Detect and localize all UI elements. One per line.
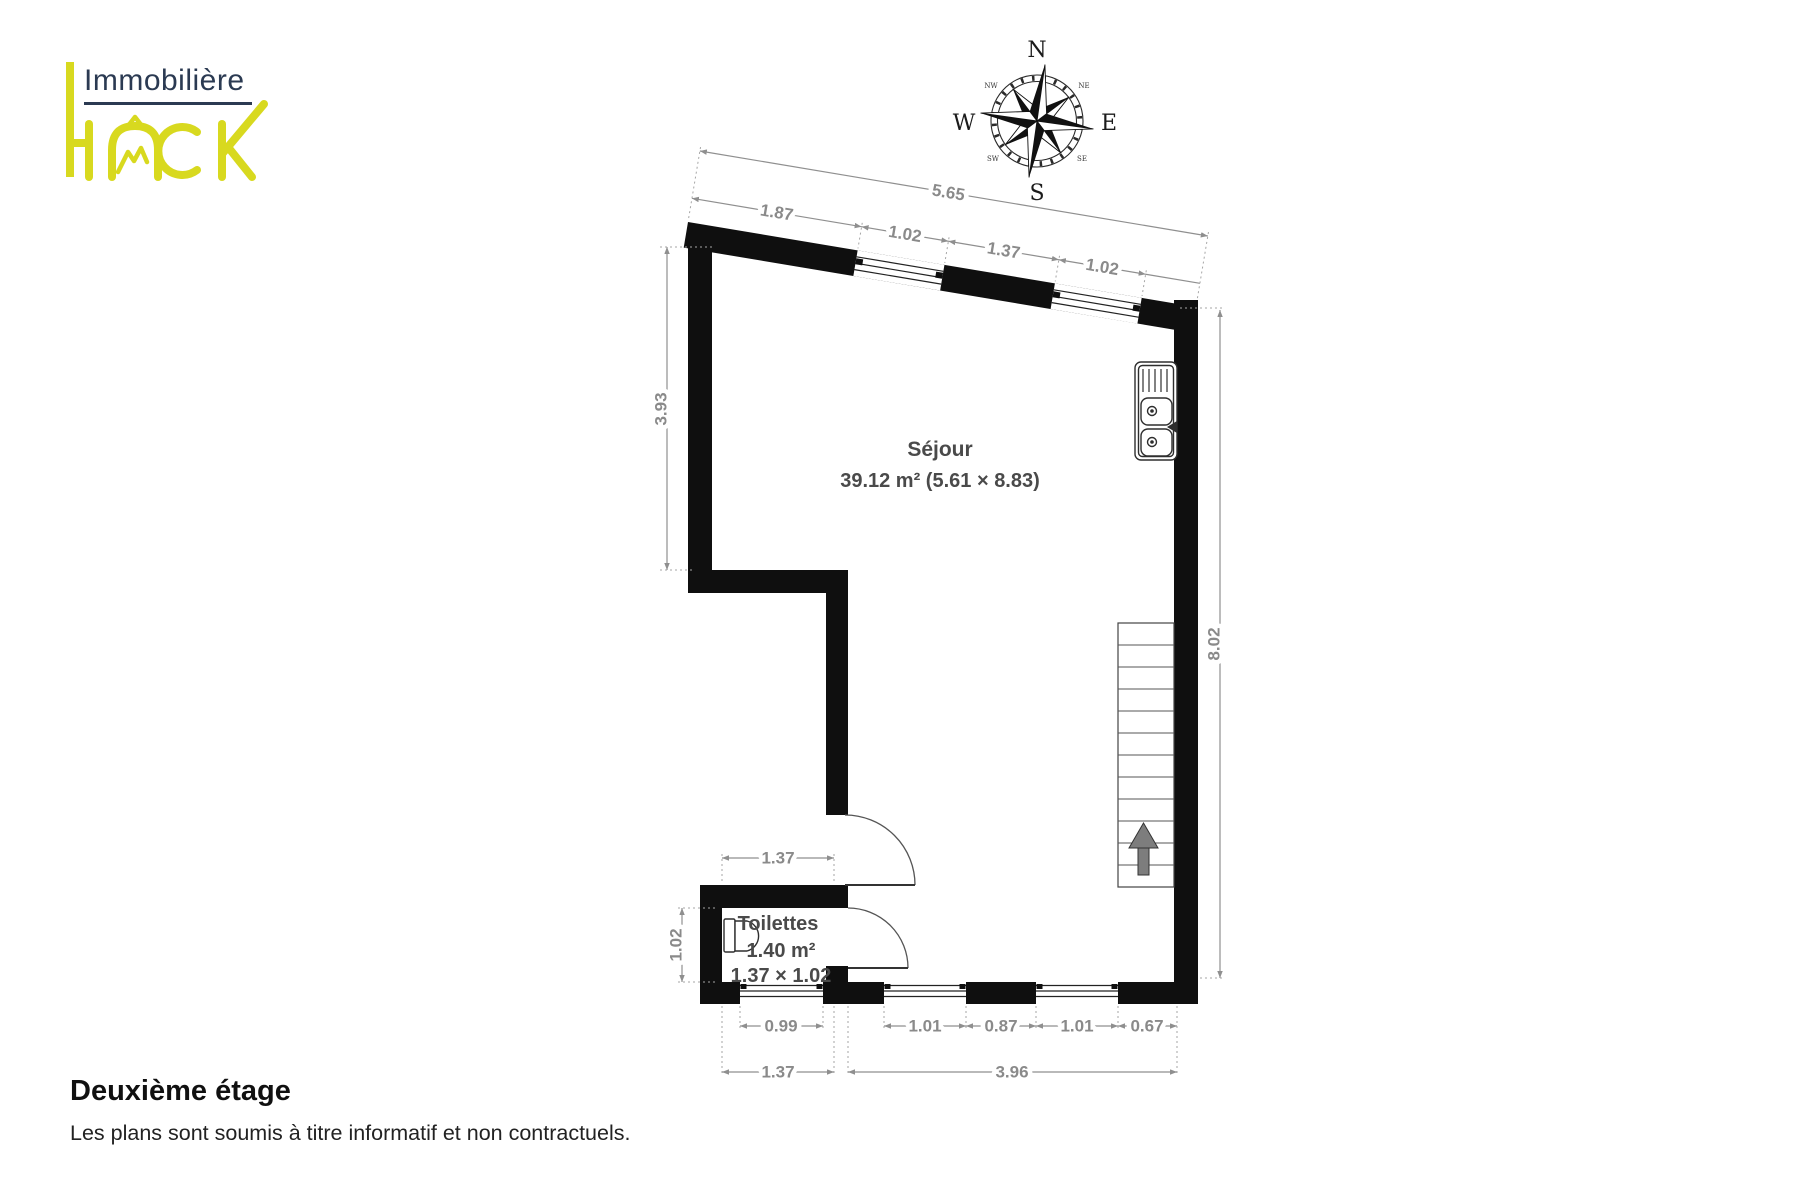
bottom-window-dimensions: 0.99 1.01 0.87 1.01 0.67 bbox=[740, 1006, 1177, 1036]
dim-bottom-w5: 0.67 bbox=[1130, 1017, 1163, 1036]
dim-left: 3.93 bbox=[652, 392, 671, 425]
compass-ne-label: NE bbox=[1078, 82, 1089, 90]
top-total-dimension: 5.65 bbox=[698, 142, 1209, 246]
dim-bottom-w1: 0.99 bbox=[764, 1017, 797, 1036]
toilettes-dims: 1.37 × 1.02 bbox=[731, 965, 832, 987]
floor-plan: 1.87 1.02 1.37 1.02 5.65 bbox=[652, 142, 1226, 1082]
floor-plan-page: Immobilière HACK bbox=[0, 0, 1801, 1200]
dim-top-total: 5.65 bbox=[931, 180, 967, 204]
compass-south-label: S bbox=[1029, 181, 1044, 206]
dim-bottom-w4: 1.01 bbox=[1060, 1017, 1093, 1036]
dim-toilettes-height: 1.02 bbox=[667, 928, 686, 961]
kitchen-sink bbox=[1135, 362, 1177, 460]
door-jamb-block bbox=[826, 885, 848, 908]
top-window-1 bbox=[853, 250, 944, 290]
toilettes-name: Toilettes bbox=[738, 913, 819, 935]
dim-bottom-total-2: 3.96 bbox=[995, 1063, 1028, 1082]
dim-right: 8.02 bbox=[1205, 627, 1224, 660]
logo-underline bbox=[84, 102, 252, 105]
dim-bottom-total-1: 1.37 bbox=[761, 1063, 794, 1082]
corridor-wall bbox=[826, 593, 848, 815]
compass-sw-label: SW bbox=[987, 155, 1000, 163]
disclaimer: Les plans sont soumis à titre informatif… bbox=[70, 1121, 630, 1145]
compass-west-label: W bbox=[953, 111, 976, 136]
dim-bottom-w2: 1.01 bbox=[908, 1017, 941, 1036]
dim-top-1: 1.87 bbox=[759, 200, 795, 224]
sejour-area: 39.12 m² (5.61 × 8.83) bbox=[840, 470, 1040, 492]
compass-east-label: E bbox=[1101, 111, 1117, 136]
toilettes-area: 1.40 m² bbox=[747, 940, 816, 962]
toilettes-door bbox=[848, 908, 908, 968]
dim-top-3: 1.37 bbox=[986, 238, 1022, 262]
floor-title: Deuxième étage bbox=[70, 1075, 291, 1107]
bottom-window-3 bbox=[1036, 982, 1118, 1004]
top-wall-group: 1.87 1.02 1.37 1.02 5.65 bbox=[684, 142, 1210, 333]
top-window-2 bbox=[1051, 283, 1142, 323]
logo-agency-name: Immobilière bbox=[84, 64, 245, 97]
compass-north-label: N bbox=[1027, 38, 1046, 63]
bottom-window-2 bbox=[884, 982, 966, 1004]
dim-top-2: 1.02 bbox=[887, 222, 923, 246]
compass-nw-label: NW bbox=[984, 82, 998, 90]
dim-toilettes-width: 1.37 bbox=[761, 849, 794, 868]
footer: Deuxième étage Les plans sont soumis à t… bbox=[70, 1075, 630, 1145]
corridor-door bbox=[845, 815, 915, 885]
sejour-step-wall bbox=[688, 570, 848, 593]
logo-hack-wordmark: HACK bbox=[70, 104, 264, 177]
sejour-name: Séjour bbox=[907, 438, 972, 461]
agency-logo: Immobilière HACK bbox=[66, 62, 264, 177]
compass-rose: N S W E NW NE SW SE bbox=[953, 38, 1117, 206]
staircase bbox=[1118, 623, 1174, 887]
compass-se-label: SE bbox=[1077, 155, 1087, 163]
dim-top-4: 1.02 bbox=[1084, 255, 1120, 279]
logo-yellow-bar bbox=[66, 62, 74, 177]
left-wall bbox=[688, 226, 712, 570]
dim-bottom-w3: 0.87 bbox=[984, 1017, 1017, 1036]
